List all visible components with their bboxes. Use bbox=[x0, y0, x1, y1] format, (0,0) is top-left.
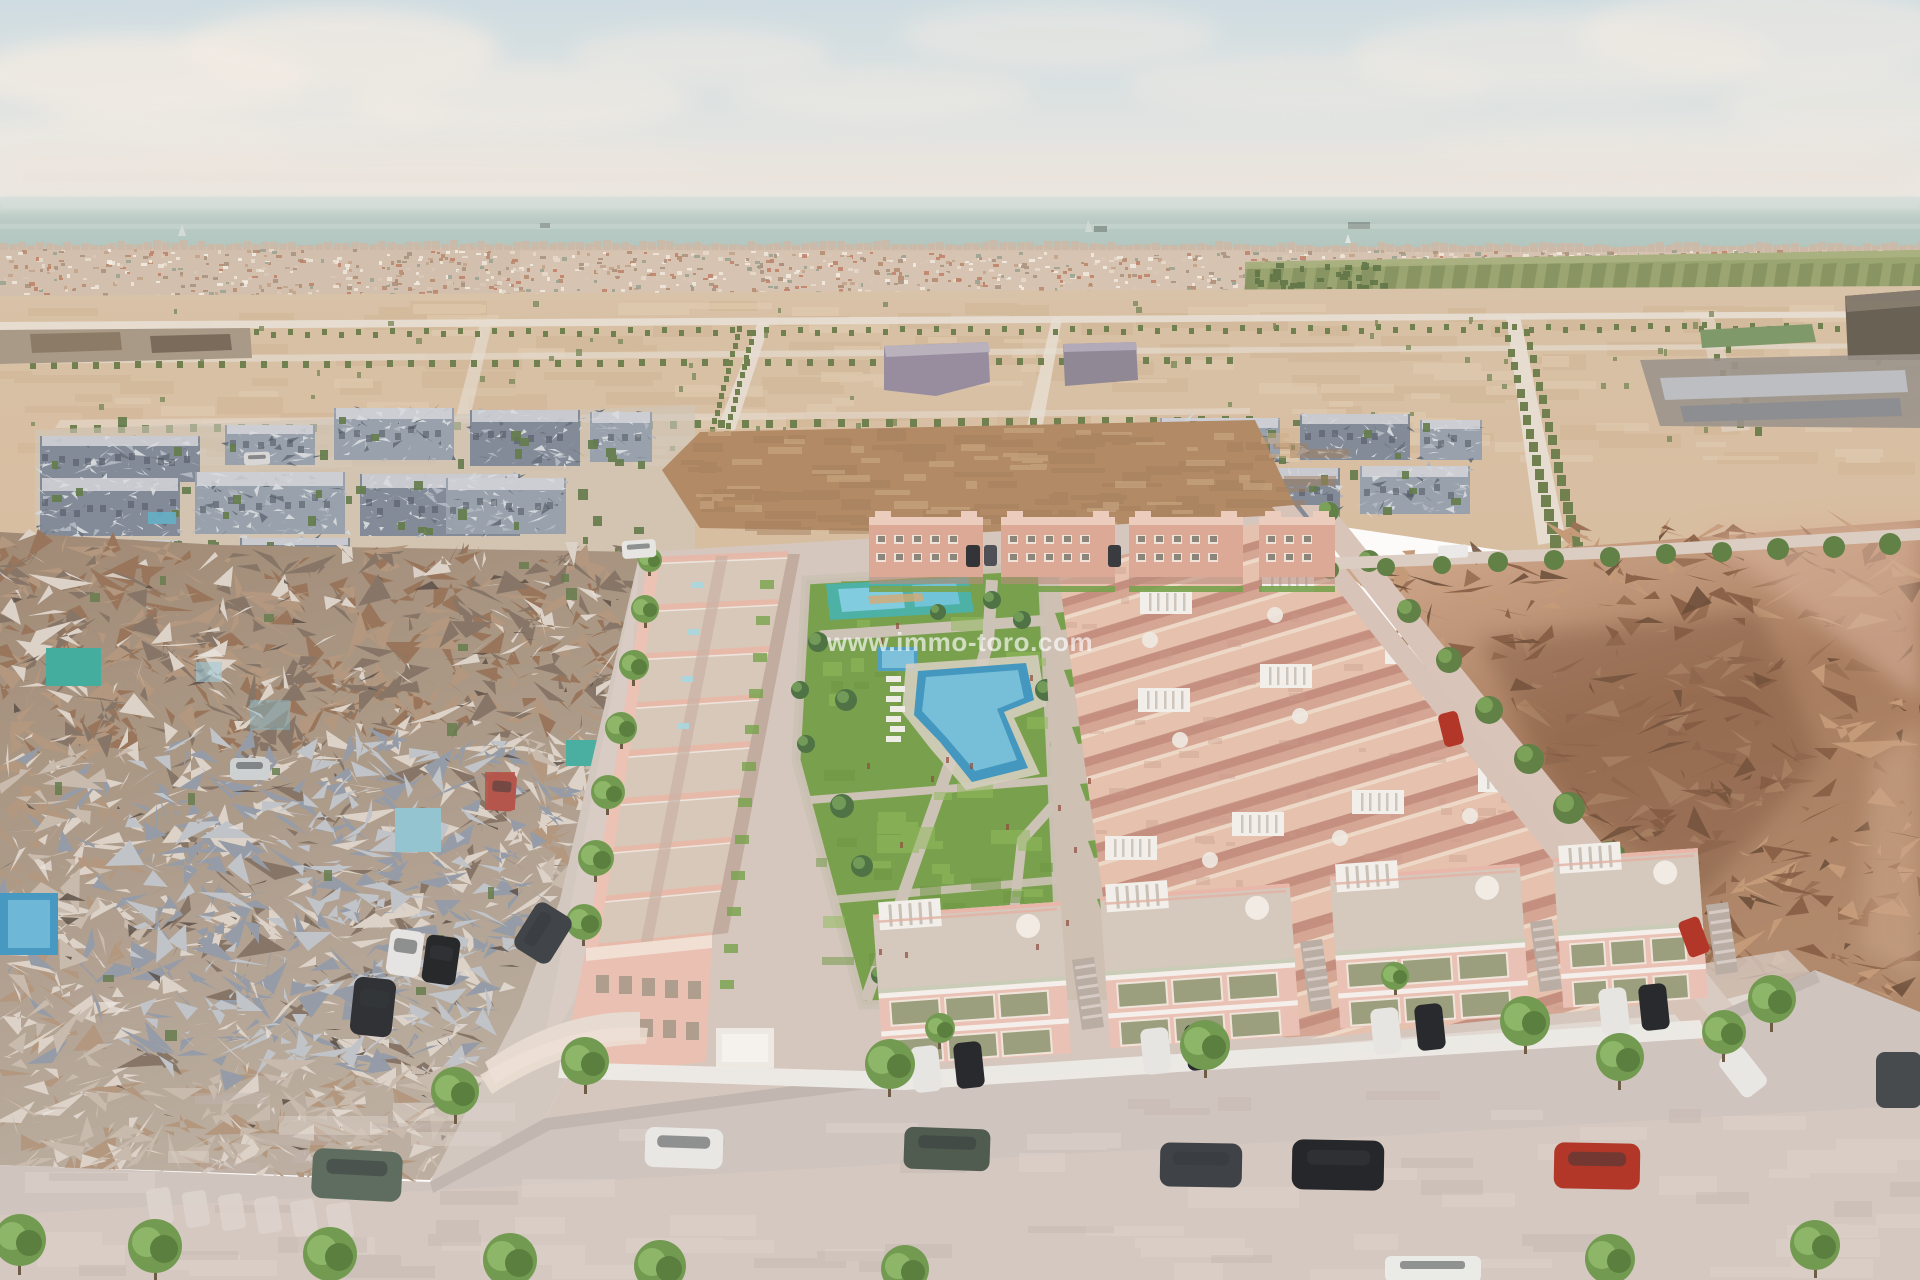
svg-text:www.immo-toro.com: www.immo-toro.com bbox=[826, 627, 1093, 657]
